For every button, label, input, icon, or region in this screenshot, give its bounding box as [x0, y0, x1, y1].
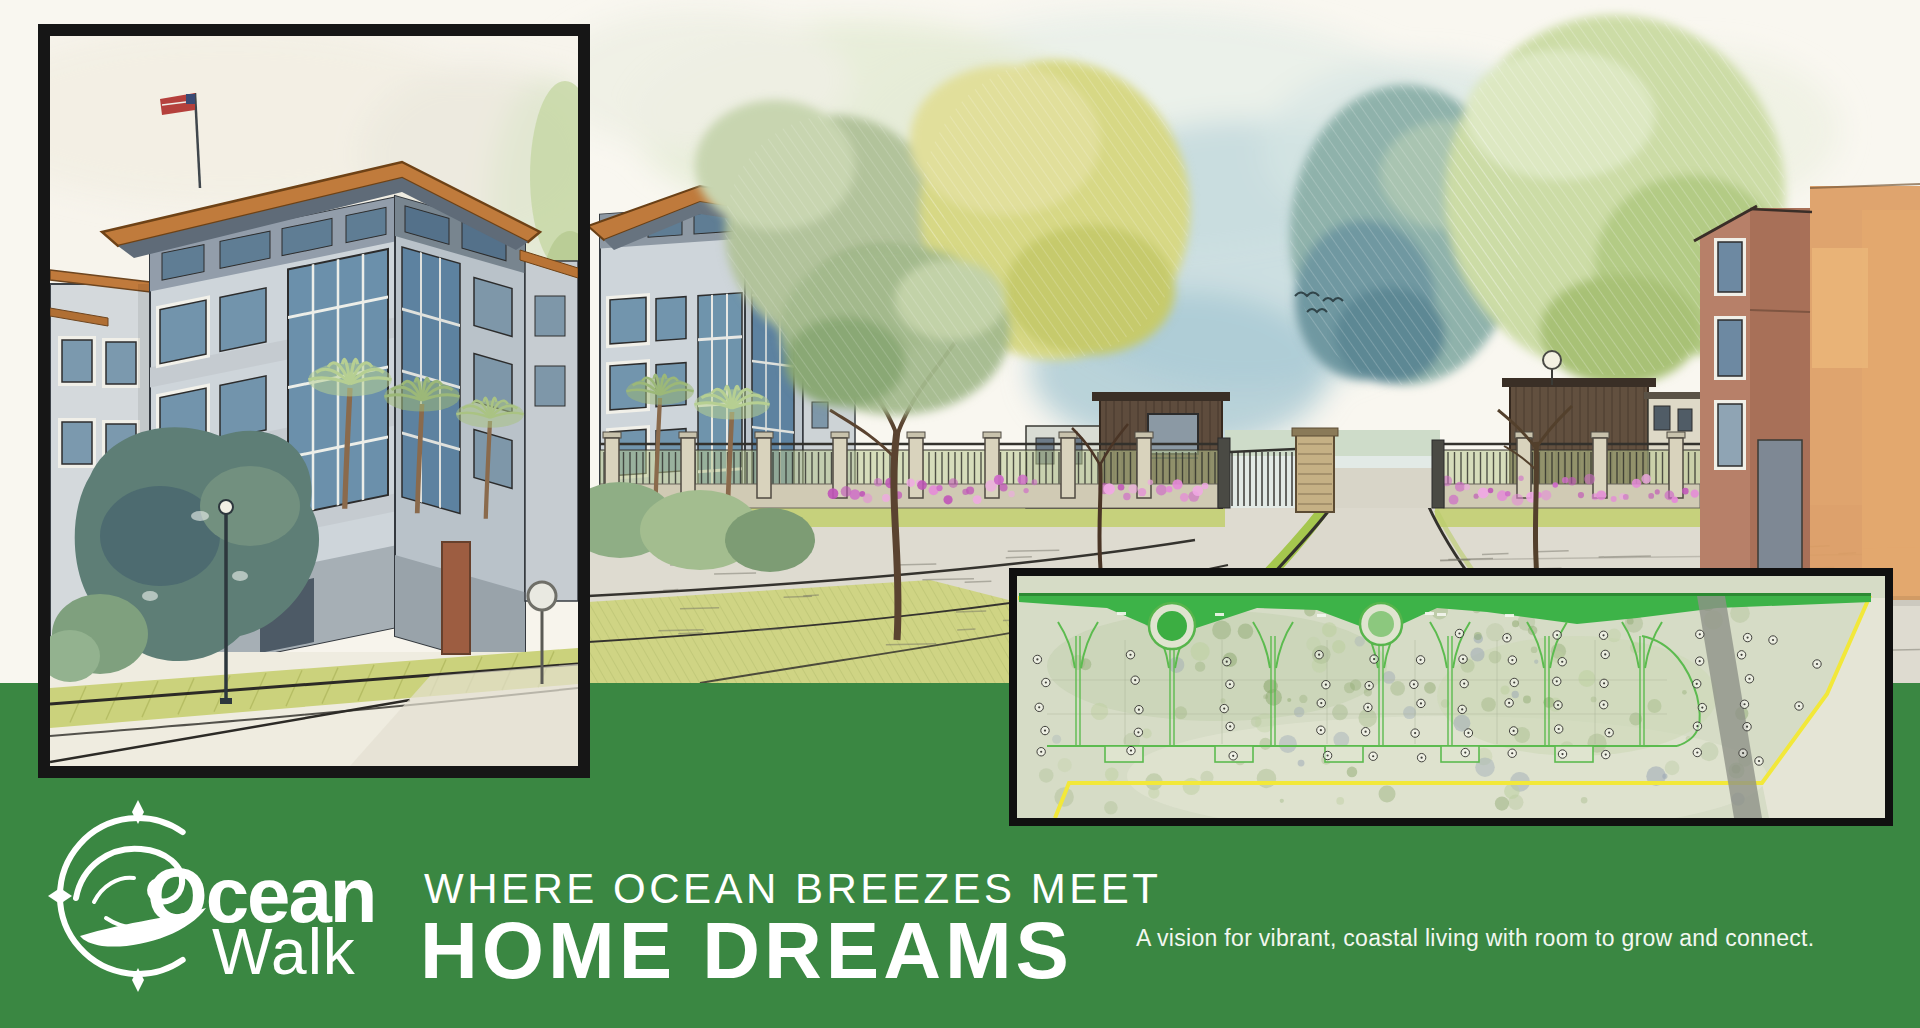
site-plan-inset	[1009, 568, 1893, 826]
brand-name-line2: Walk	[212, 920, 356, 984]
building-inset-art	[50, 36, 578, 766]
hero-title: HOME DREAMS	[420, 909, 1073, 993]
building-inset-frame	[38, 24, 590, 778]
right-buildings	[1694, 184, 1920, 606]
poster: Ocean Walk WHERE OCEAN BREEZES MEET HOME…	[0, 0, 1920, 1028]
site-plan-art	[1017, 576, 1885, 818]
stone-pier	[1296, 434, 1334, 512]
hero-tagline: A vision for vibrant, coastal living wit…	[1136, 925, 1814, 952]
